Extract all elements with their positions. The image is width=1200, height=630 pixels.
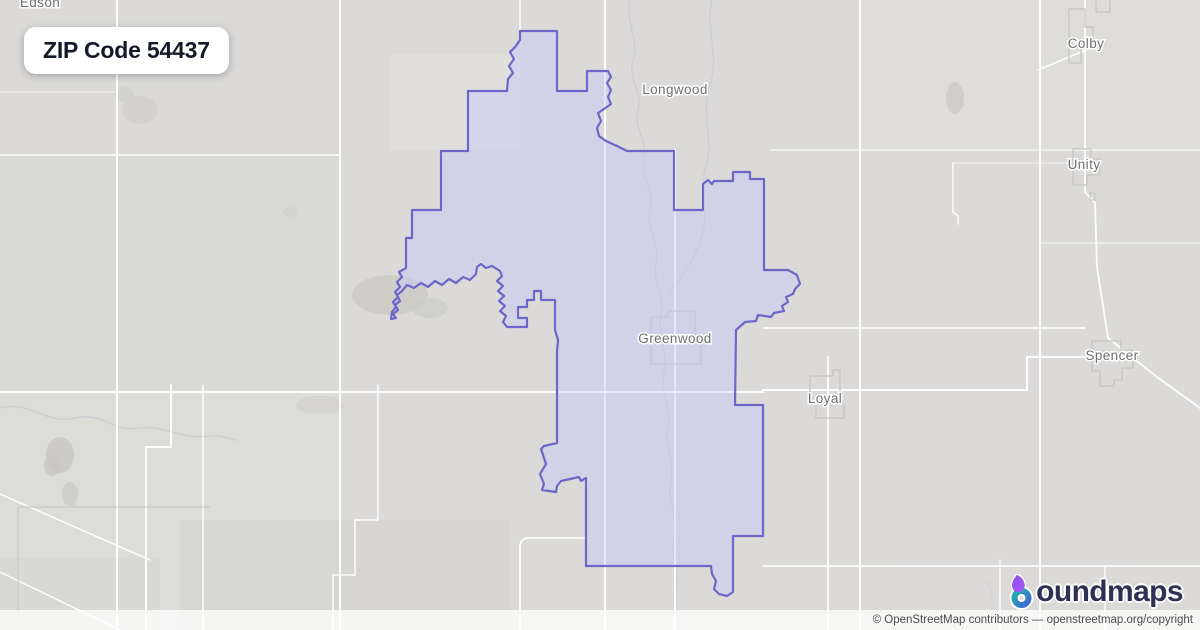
place-label-loyal: Loyal [808,391,842,406]
place-label-unity: Unity [1068,157,1101,172]
map-canvas[interactable]: EdsonLongwoodColbyUnityGreenwoodLoyalSpe… [0,0,1200,630]
boundmaps-wordmark: oundmaps [1036,575,1183,609]
place-label-spencer: Spencer [1085,348,1138,363]
boundmaps-b-icon [1008,574,1035,610]
zip-title-badge: ZIP Code 54437 [24,27,229,74]
place-label-edson: Edson [20,0,60,10]
attribution-bar: © OpenStreetMap contributors — openstree… [0,610,1200,630]
osm-attribution-link[interactable]: © OpenStreetMap contributors — openstree… [873,614,1193,626]
place-label-longwood: Longwood [642,82,708,97]
boundmaps-logo[interactable]: oundmaps [1008,574,1183,610]
place-label-greenwood: Greenwood [638,331,711,346]
map-page: EdsonLongwoodColbyUnityGreenwoodLoyalSpe… [0,0,1200,630]
zip-title-text: ZIP Code 54437 [43,37,210,63]
place-label-colby: Colby [1068,36,1105,51]
